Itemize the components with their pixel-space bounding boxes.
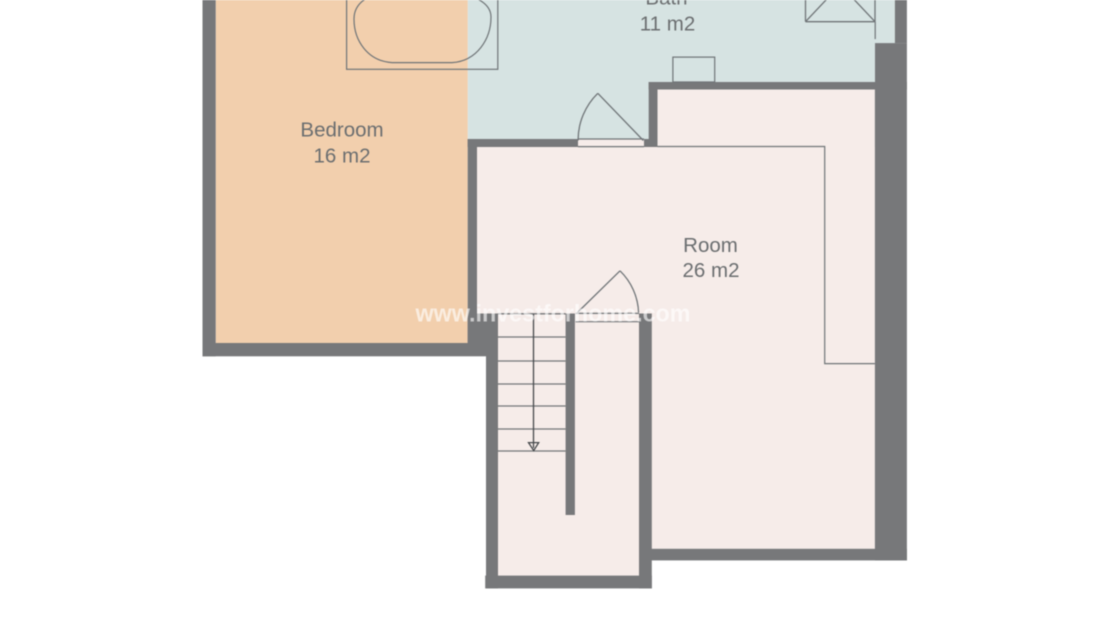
svg-text:16 m2: 16 m2 — [314, 144, 371, 167]
svg-text:11 m2: 11 m2 — [640, 12, 695, 35]
svg-text:Bedroom: Bedroom — [300, 119, 383, 142]
svg-text:www.investforhome.com: www.investforhome.com — [415, 301, 691, 328]
svg-text:Bath: Bath — [645, 0, 687, 9]
svg-text:Room: Room — [683, 234, 738, 257]
svg-text:26 m2: 26 m2 — [683, 259, 740, 282]
